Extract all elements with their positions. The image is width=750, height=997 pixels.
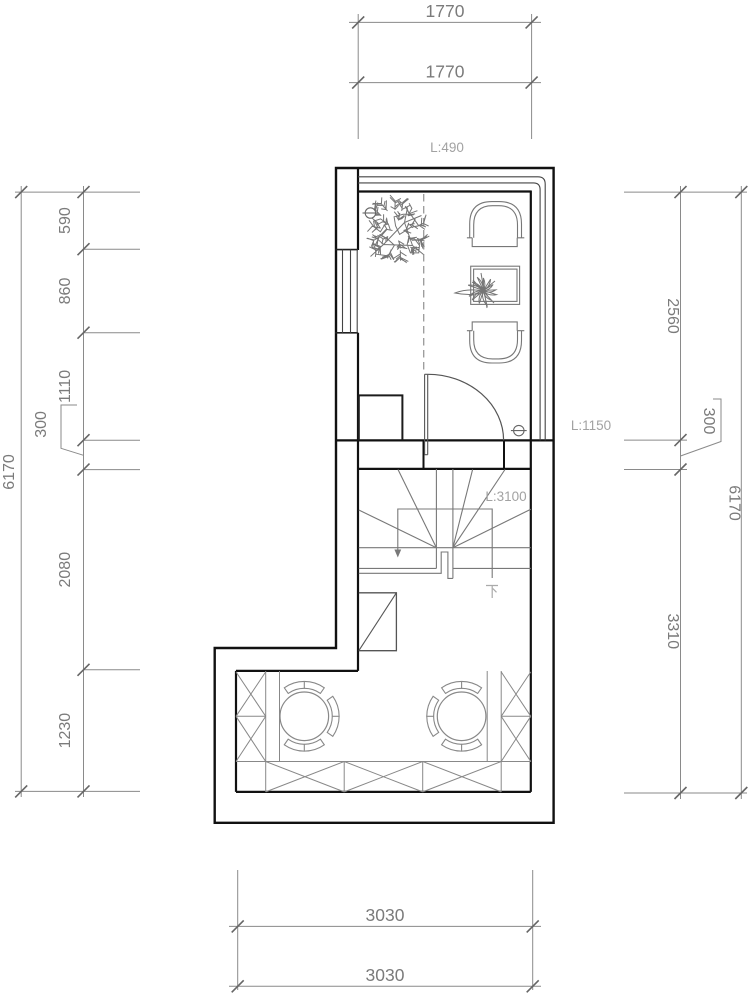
svg-text:3030: 3030 [366, 905, 405, 925]
svg-text:1770: 1770 [426, 62, 465, 82]
svg-text:6170: 6170 [726, 485, 743, 521]
svg-text:300: 300 [700, 408, 717, 435]
svg-text:1110: 1110 [57, 370, 74, 403]
svg-text:L:1150: L:1150 [571, 418, 611, 433]
svg-text:L:490: L:490 [430, 140, 464, 155]
svg-text:590: 590 [57, 207, 74, 234]
svg-text:2560: 2560 [664, 298, 681, 334]
svg-text:3030: 3030 [366, 965, 405, 985]
svg-text:300: 300 [33, 411, 50, 438]
svg-text:6170: 6170 [1, 454, 18, 490]
svg-text:1770: 1770 [426, 1, 465, 21]
svg-text:L:3100: L:3100 [485, 489, 526, 504]
svg-text:1230: 1230 [57, 713, 74, 749]
svg-text:860: 860 [57, 278, 74, 305]
svg-text:3310: 3310 [664, 614, 681, 650]
svg-text:2080: 2080 [57, 552, 74, 588]
